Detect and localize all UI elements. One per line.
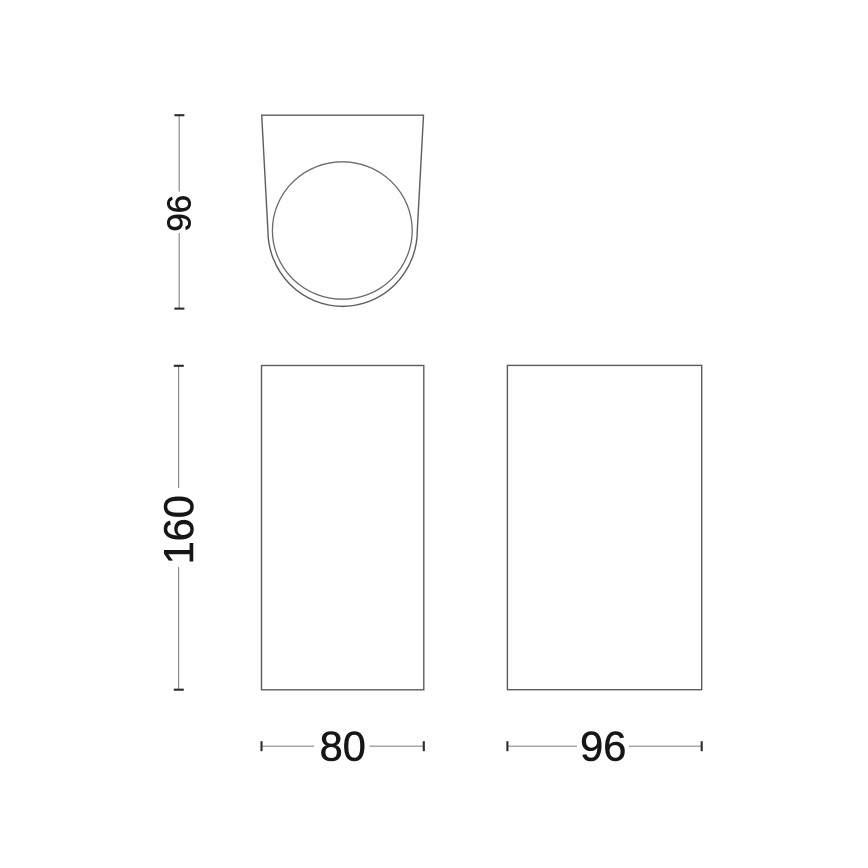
svg-text:80: 80 bbox=[320, 723, 366, 770]
svg-text:96: 96 bbox=[161, 195, 198, 232]
svg-text:96: 96 bbox=[580, 723, 626, 770]
svg-text:160: 160 bbox=[155, 495, 202, 564]
